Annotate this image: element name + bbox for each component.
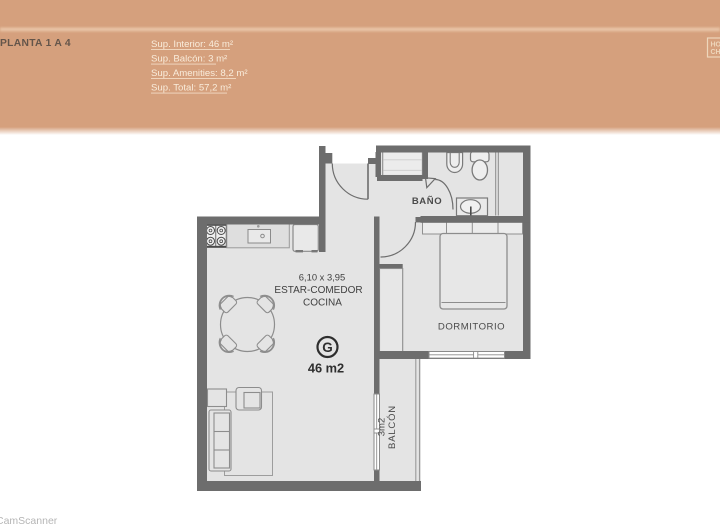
svg-text:Sup. Total: 57,2 m²: Sup. Total: 57,2 m² bbox=[151, 82, 232, 93]
svg-text:3m2: 3m2 bbox=[377, 418, 388, 436]
svg-text:COCINA: COCINA bbox=[303, 298, 342, 309]
svg-text:Sup. Balcón: 3 m²: Sup. Balcón: 3 m² bbox=[151, 53, 228, 64]
svg-text:Sup. Interior: 46 m²: Sup. Interior: 46 m² bbox=[151, 39, 234, 50]
svg-text:BALCÓN: BALCÓN bbox=[387, 405, 398, 449]
svg-text:DORMITORIO: DORMITORIO bbox=[438, 322, 505, 333]
svg-text:ESTAR-COMEDOR: ESTAR-COMEDOR bbox=[274, 285, 362, 296]
svg-text:6,10 x 3,95: 6,10 x 3,95 bbox=[299, 272, 345, 283]
svg-text:CamScanner: CamScanner bbox=[0, 515, 58, 527]
svg-text:BAÑO: BAÑO bbox=[412, 196, 442, 207]
svg-text:G: G bbox=[322, 340, 333, 355]
svg-text:Sup. Amenities: 8,2 m²: Sup. Amenities: 8,2 m² bbox=[151, 68, 248, 79]
svg-text:PLANTA 1 A 4: PLANTA 1 A 4 bbox=[0, 38, 71, 49]
svg-text:HO: HO bbox=[711, 42, 720, 49]
svg-text:CH: CH bbox=[711, 49, 720, 56]
svg-text:46 m2: 46 m2 bbox=[308, 361, 344, 376]
